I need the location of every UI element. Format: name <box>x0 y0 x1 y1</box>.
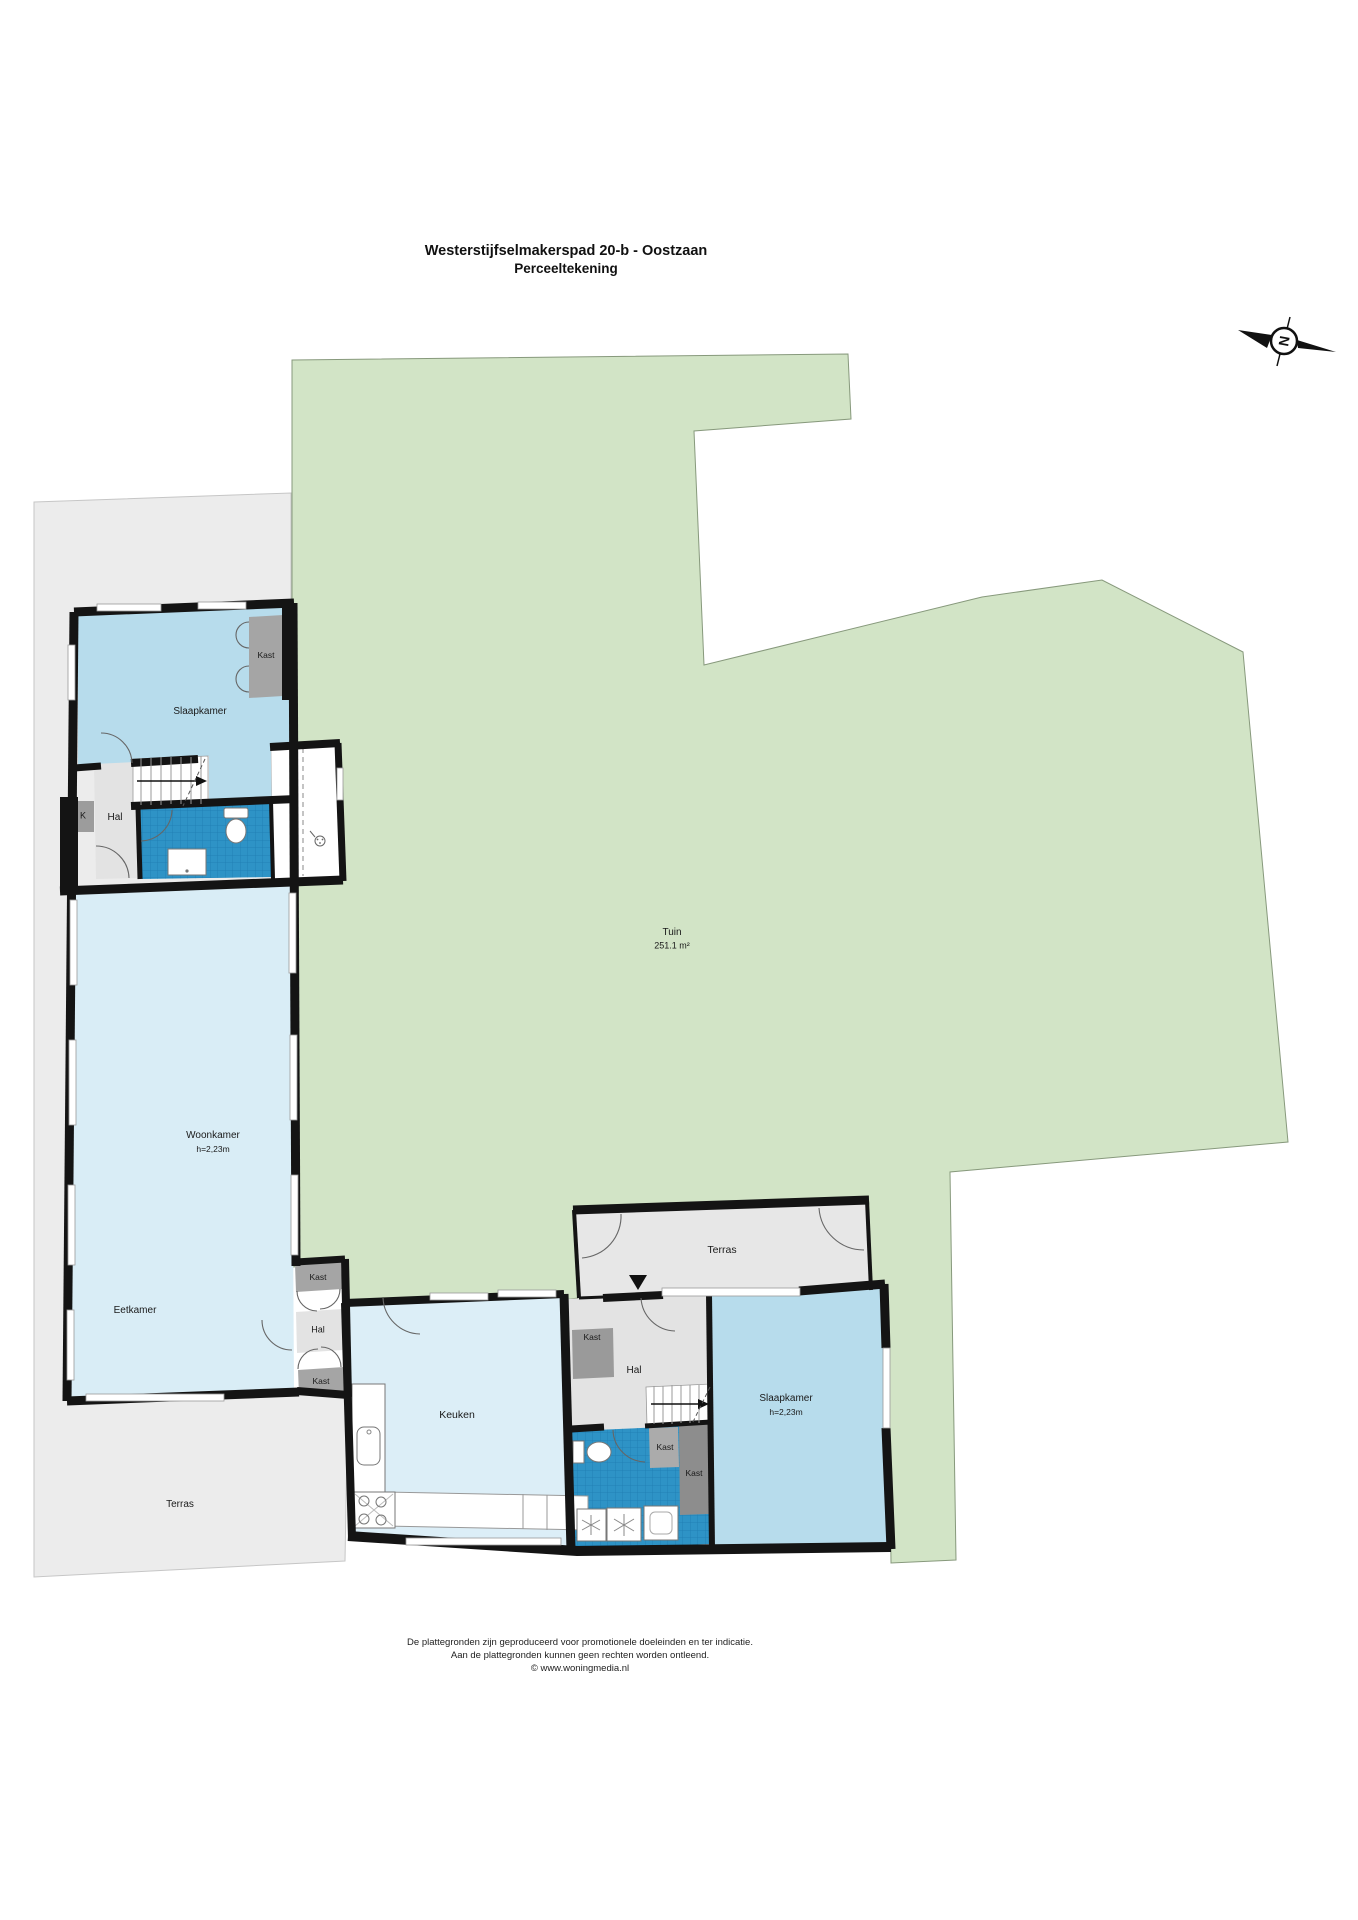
closet-label-kast-1: Kast <box>257 651 274 660</box>
floorplan-drawing: N <box>0 0 1358 1920</box>
footer-disclaimer-1: De plattegronden zijn geproduceerd voor … <box>407 1637 753 1648</box>
closet-label-kast-hal2: Kast <box>583 1333 600 1342</box>
shower-tray-icon <box>644 1506 678 1540</box>
footer-copyright: © www.woningmedia.nl <box>531 1663 629 1674</box>
toilet2-bowl-icon <box>587 1442 611 1462</box>
closet-label-kast-col-bottom: Kast <box>312 1377 329 1386</box>
page-title: Westerstijfselmakerspad 20-b - Oostzaan <box>425 243 708 259</box>
kitchen-sink-icon <box>357 1427 380 1465</box>
room-height-woonkamer: h=2,23m <box>196 1145 229 1154</box>
room-label-terras-left: Terras <box>166 1500 194 1510</box>
footer-disclaimer-2: Aan de plattegronden kunnen geen rechten… <box>451 1650 709 1661</box>
toilet1-bowl-icon <box>226 819 246 843</box>
garden-area-label: 251.1 m² <box>654 942 690 951</box>
room-label-terras-top: Terras <box>707 1245 736 1256</box>
closet-label-k: K <box>80 812 86 821</box>
room-label-eetkamer: Eetkamer <box>114 1306 157 1316</box>
room-label-slaapkamer-2: Slaapkamer <box>759 1394 812 1404</box>
page-subtitle: Perceeltekening <box>514 261 618 276</box>
room-label-slaapkamer-1: Slaapkamer <box>173 707 226 717</box>
closet-label-kast-col-top: Kast <box>309 1273 326 1282</box>
room-label-hal-2: Hal <box>626 1366 641 1376</box>
room-label-woonkamer: Woonkamer <box>186 1131 240 1141</box>
room-label-hal-1: Hal <box>107 813 122 823</box>
floorplan-page: N Westerstijfselmakerspad 20-b - Oostzaa… <box>0 0 1358 1920</box>
north-compass-icon: N <box>1238 317 1336 366</box>
toilet1-tank-icon <box>224 808 248 818</box>
room-label-hal-mid: Hal <box>311 1326 325 1335</box>
room-label-keuken: Keuken <box>439 1410 475 1421</box>
closet-label-kast-small: Kast <box>656 1443 673 1452</box>
garden-label: Tuin <box>662 928 681 938</box>
toilet2-tank-icon <box>573 1441 584 1463</box>
closet-label-kast-dark: Kast <box>685 1469 702 1478</box>
shower-head-icon <box>315 836 325 846</box>
room-height-slaapkamer-2: h=2,23m <box>769 1408 802 1417</box>
